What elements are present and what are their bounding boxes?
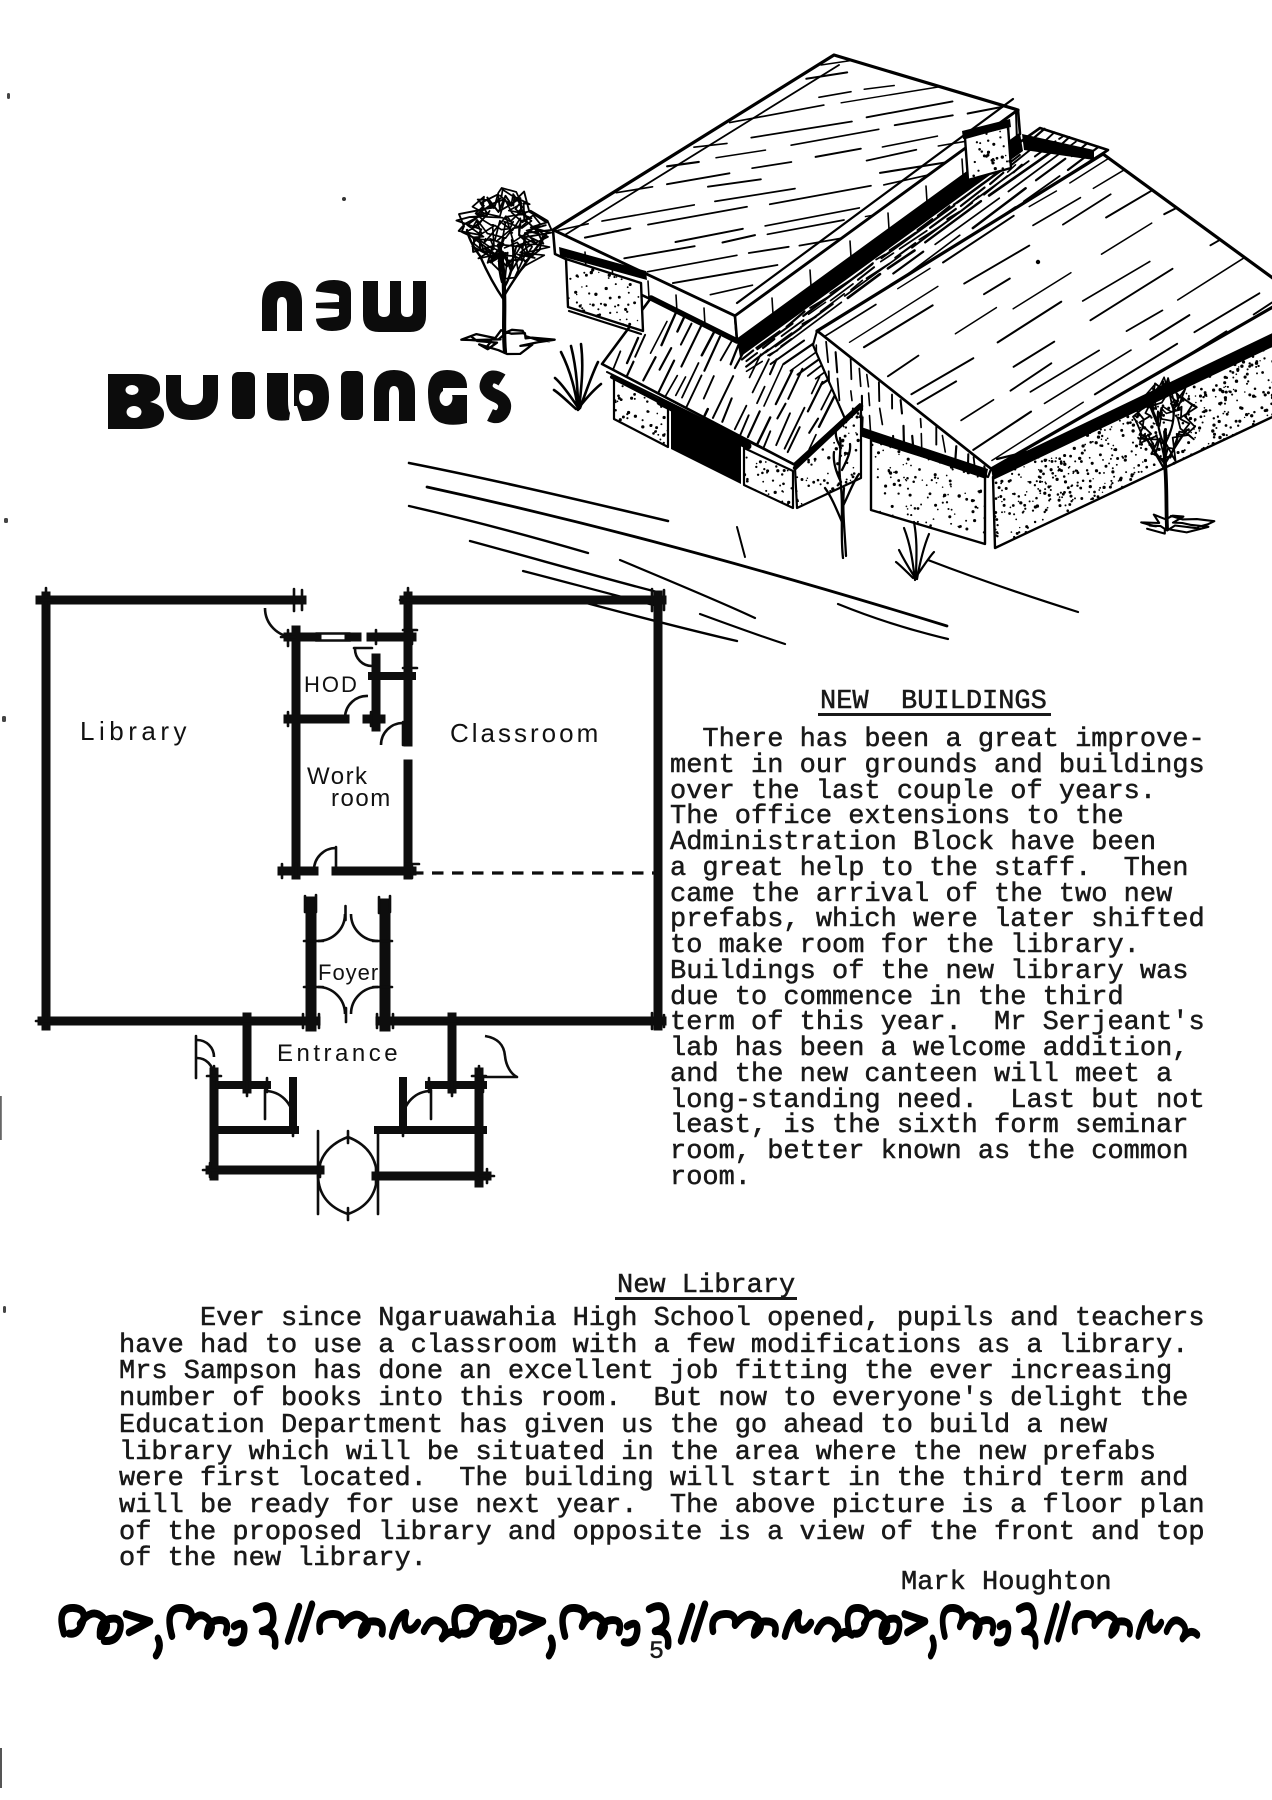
- svg-text:Classroom: Classroom: [450, 718, 601, 748]
- svg-text:Entrance: Entrance: [277, 1040, 401, 1067]
- svg-text:HOD: HOD: [304, 672, 359, 697]
- svg-text:room: room: [331, 785, 392, 812]
- svg-text:Library: Library: [80, 716, 191, 746]
- svg-text:Foyer: Foyer: [318, 960, 379, 985]
